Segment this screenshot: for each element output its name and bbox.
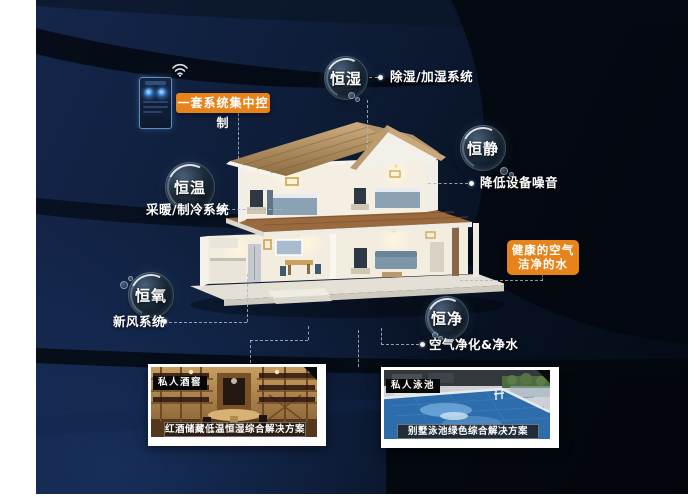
- connector-line: [227, 209, 282, 210]
- connector-line: [238, 113, 239, 159]
- connector-dot: [220, 207, 225, 212]
- panel-row: [143, 101, 168, 103]
- bubble-label: 恒湿: [330, 68, 362, 89]
- label-purification-system: 空气净化&净水: [429, 338, 518, 352]
- label-noise-reduction: 降低设备噪音: [480, 176, 558, 190]
- bubble-accent: [348, 92, 355, 99]
- central-control-badge: 一套系统集中控制: [176, 93, 270, 113]
- callout-line2: 洁净的水: [507, 257, 579, 271]
- bubble-accent: [128, 276, 133, 281]
- wifi-icon: [171, 62, 189, 77]
- control-panel: [139, 77, 172, 129]
- connector-dot: [378, 75, 383, 80]
- pool-tag: 私人泳池: [386, 379, 440, 393]
- connector-line: [250, 340, 251, 363]
- bubble-label: 恒净: [431, 308, 463, 329]
- label-fresh-air-system: 新风系统: [113, 315, 165, 329]
- connector-line: [169, 322, 247, 323]
- connector-line: [369, 77, 378, 78]
- bubble-constant-quiet: 恒静: [460, 125, 506, 171]
- panel-row: [143, 106, 168, 108]
- callout-line1: 健康的空气: [507, 243, 579, 257]
- corner-fold: [304, 367, 317, 380]
- corner-fold: [537, 370, 550, 383]
- connector-line: [367, 100, 368, 148]
- panel-header: [145, 81, 166, 85]
- connector-line: [358, 330, 359, 367]
- poster-page: 一套系统集中控制 健康的空气 洁净的水 恒湿 恒静 恒温 恒氧: [0, 0, 700, 497]
- connector-line: [381, 344, 419, 345]
- wine-cellar-caption: 红酒储藏低温恒湿综合解决方案: [164, 422, 306, 437]
- bubble-accent: [120, 281, 128, 289]
- bubble-accent: [500, 167, 508, 175]
- connector-line: [247, 274, 248, 322]
- photo-frame: 私人泳池 别墅泳池绿色综合解决方案: [384, 370, 550, 439]
- pool-caption: 别墅泳池绿色综合解决方案: [397, 424, 539, 439]
- wine-cellar-tag: 私人酒窖: [153, 376, 207, 390]
- connector-line: [308, 326, 309, 340]
- bubble-constant-oxygen: 恒氧: [128, 272, 174, 318]
- bubble-constant-humidity: 恒湿: [324, 56, 368, 100]
- panel-row: [143, 111, 162, 113]
- panel-knob-icon: [144, 88, 154, 98]
- panel-knob-icon: [157, 88, 167, 98]
- label-humidity-system: 除湿/加湿系统: [390, 70, 473, 84]
- connector-line: [460, 280, 543, 281]
- bubble-label: 恒温: [174, 177, 206, 198]
- bubble-accent: [355, 97, 360, 102]
- connector-dot: [469, 181, 474, 186]
- bubble-label: 恒氧: [135, 285, 167, 306]
- photo-wine-cellar: 私人酒窖 红酒储藏低温恒湿综合解决方案: [148, 364, 326, 446]
- connector-line: [428, 183, 468, 184]
- photo-private-pool: 私人泳池 别墅泳池绿色综合解决方案: [381, 367, 559, 448]
- photo-frame: 私人酒窖 红酒储藏低温恒湿综合解决方案: [151, 367, 317, 437]
- connector-line: [381, 328, 382, 345]
- poster-canvas: 一套系统集中控制 健康的空气 洁净的水 恒湿 恒静 恒温 恒氧: [36, 0, 688, 494]
- healthy-air-water-callout: 健康的空气 洁净的水: [507, 240, 579, 275]
- connector-line: [250, 340, 308, 341]
- label-hvac-system: 采暖/制冷系统: [146, 203, 229, 217]
- connector-dot: [420, 342, 425, 347]
- connector-dot: [162, 319, 167, 324]
- bubble-label: 恒静: [467, 138, 499, 159]
